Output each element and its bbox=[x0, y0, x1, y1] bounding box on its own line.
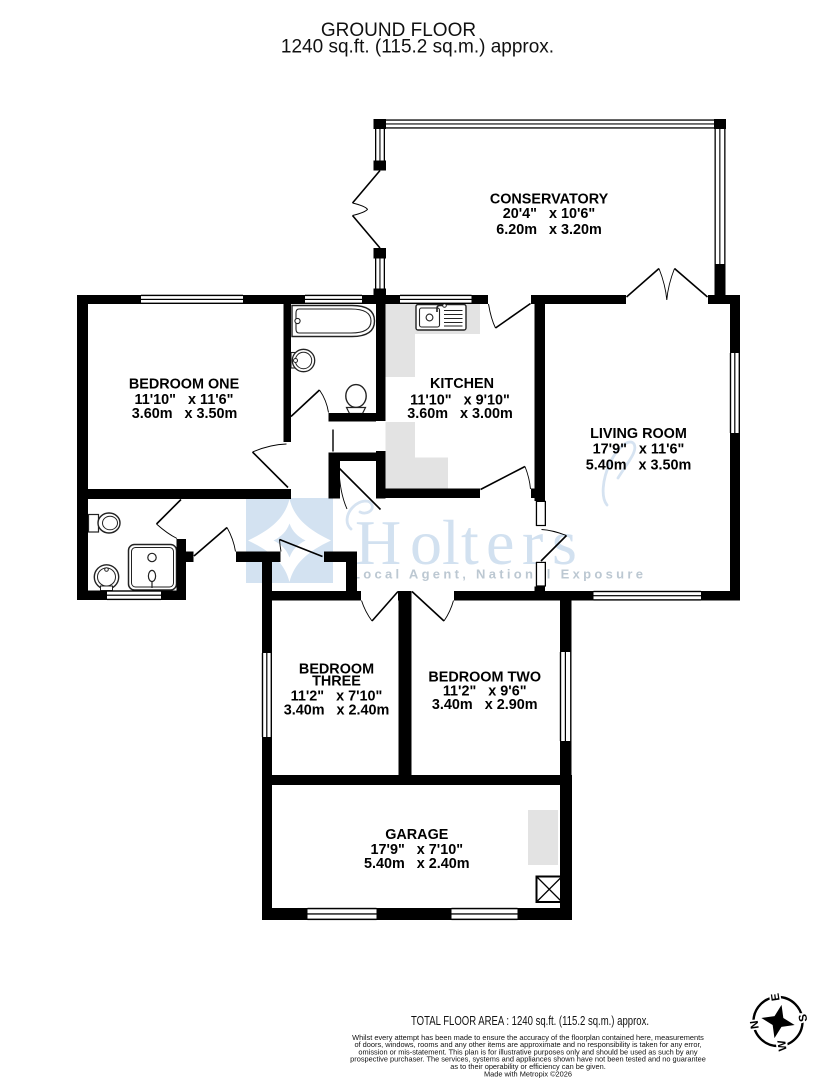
svg-text:BEDROOM ONE: BEDROOM ONE bbox=[129, 376, 240, 392]
svg-text:KITCHEN: KITCHEN bbox=[430, 376, 494, 392]
svg-text:5.40m x 3.50m: 5.40m x 3.50m bbox=[586, 457, 692, 473]
svg-text:W: W bbox=[776, 1039, 789, 1052]
svg-text:3.40m x 2.90m: 3.40m x 2.90m bbox=[432, 697, 538, 713]
svg-text:Made with Metropix ©2026: Made with Metropix ©2026 bbox=[484, 1069, 572, 1078]
svg-text:5.40m x 2.40m: 5.40m x 2.40m bbox=[364, 856, 470, 872]
svg-text:N: N bbox=[749, 1020, 762, 1030]
svg-text:3.60m x 3.50m: 3.60m x 3.50m bbox=[132, 406, 238, 422]
svg-text:6.20m x 3.20m: 6.20m x 3.20m bbox=[496, 222, 602, 238]
svg-text:Local Agent, National Exposure: Local Agent, National Exposure bbox=[352, 567, 646, 582]
svg-text:TOTAL FLOOR AREA : 1240 sq.ft.: TOTAL FLOOR AREA : 1240 sq.ft. (115.2 sq… bbox=[411, 1013, 649, 1028]
svg-text:GARAGE: GARAGE bbox=[385, 827, 449, 843]
svg-text:THREE: THREE bbox=[312, 674, 361, 690]
svg-text:3.60m x 3.00m: 3.60m x 3.00m bbox=[407, 406, 513, 422]
svg-text:1240 sq.ft. (115.2 sq.m.) appr: 1240 sq.ft. (115.2 sq.m.) approx. bbox=[281, 36, 554, 57]
svg-text:20'4" x 10'6": 20'4" x 10'6" bbox=[503, 206, 596, 222]
svg-text:17'9" x 11'6": 17'9" x 11'6" bbox=[593, 442, 685, 458]
svg-text:LIVING ROOM: LIVING ROOM bbox=[590, 426, 687, 442]
svg-text:3.40m x 2.40m: 3.40m x 2.40m bbox=[284, 703, 390, 719]
